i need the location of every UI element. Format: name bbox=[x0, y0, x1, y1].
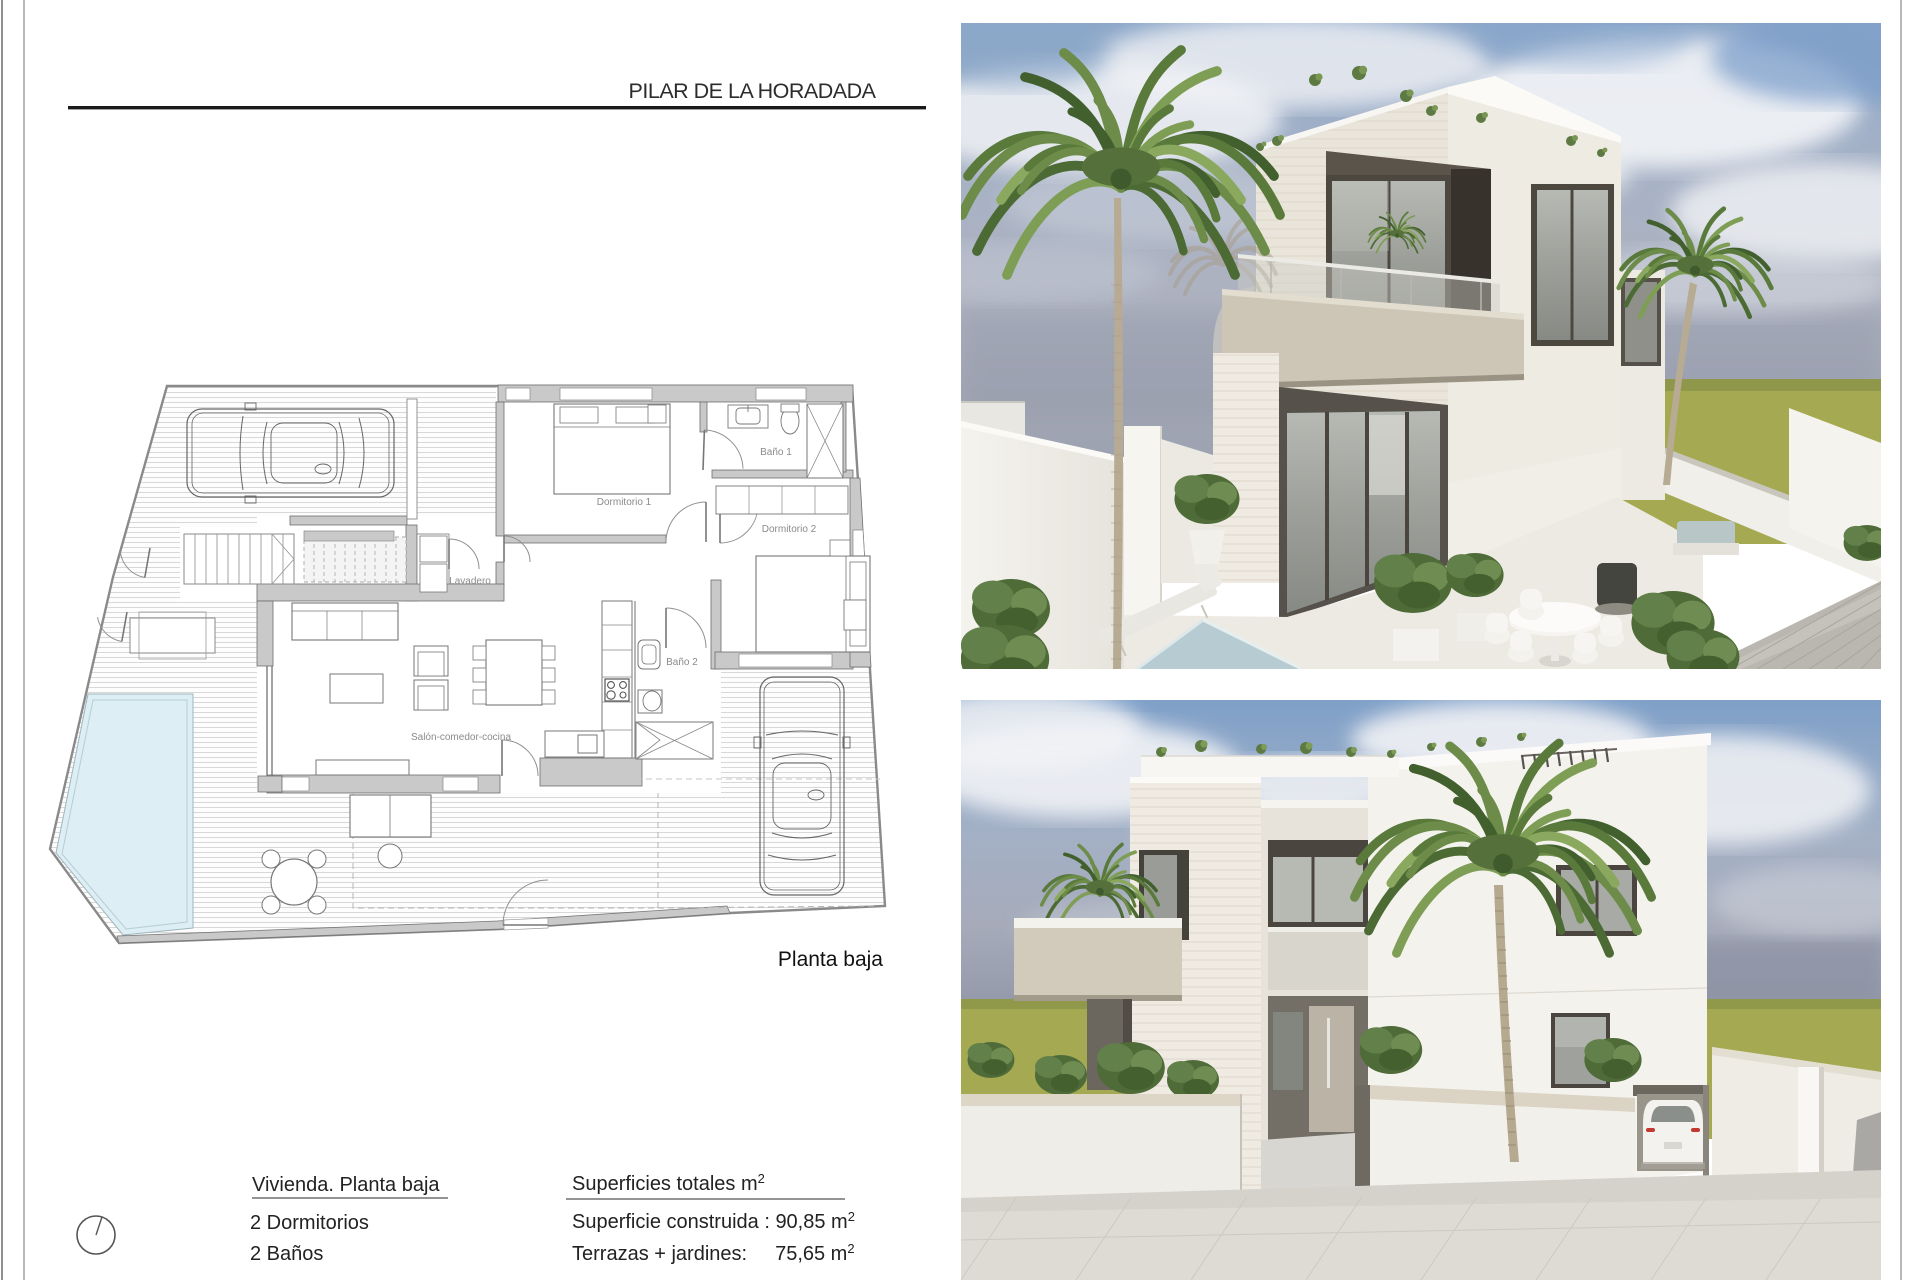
svg-text:PILAR DE LA HORADADA: PILAR DE LA HORADADA bbox=[629, 79, 877, 103]
svg-text:Lavadero: Lavadero bbox=[449, 576, 491, 587]
svg-text:Baño 2: Baño 2 bbox=[666, 657, 698, 668]
svg-text:Superficie construida : 90,85: Superficie construida : 90,85 m2 bbox=[572, 1209, 855, 1233]
svg-text:Superficies totales m2: Superficies totales m2 bbox=[572, 1171, 765, 1195]
svg-text:2 Baños: 2 Baños bbox=[250, 1243, 323, 1265]
svg-text:Salón-comedor-cocina: Salón-comedor-cocina bbox=[411, 732, 511, 743]
svg-text:Dormitorio 2: Dormitorio 2 bbox=[762, 524, 817, 535]
svg-text:Planta baja: Planta baja bbox=[778, 948, 883, 971]
svg-text:2 Dormitorios: 2 Dormitorios bbox=[250, 1212, 369, 1234]
svg-text:Vivienda. Planta baja: Vivienda. Planta baja bbox=[252, 1174, 440, 1196]
svg-text:Baño 1: Baño 1 bbox=[760, 447, 792, 458]
svg-text:Terrazas + jardines:75,65 m2: Terrazas + jardines:75,65 m2 bbox=[572, 1241, 855, 1265]
svg-text:Dormitorio 1: Dormitorio 1 bbox=[597, 497, 652, 508]
